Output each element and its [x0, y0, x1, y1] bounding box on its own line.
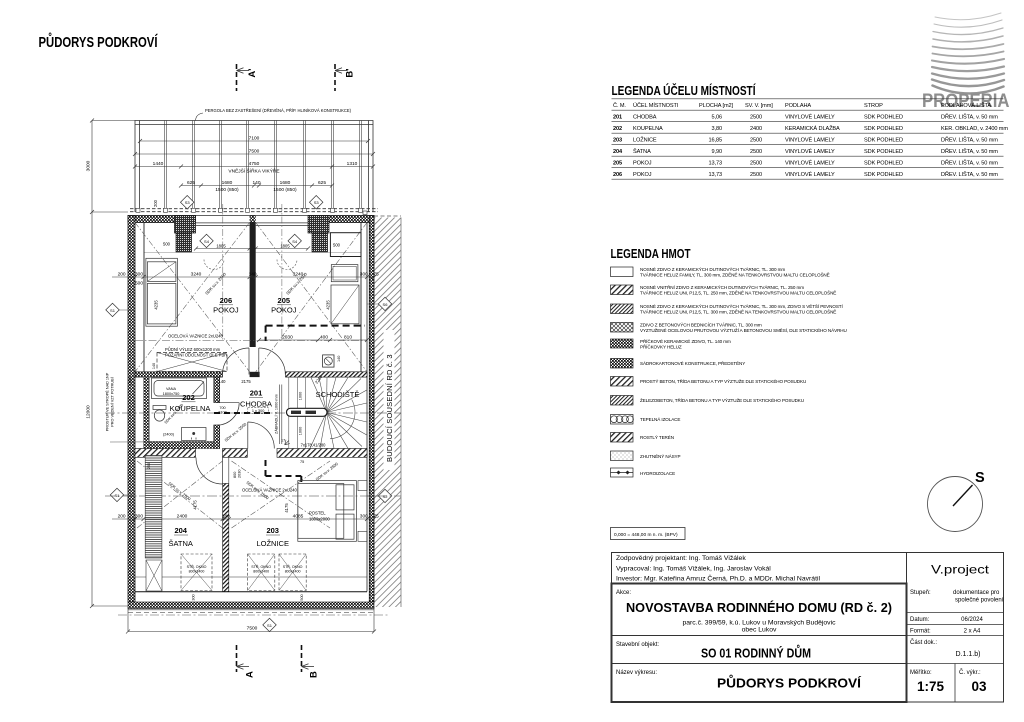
- svg-text:500: 500: [135, 281, 143, 287]
- svg-text:800x1400: 800x1400: [189, 570, 205, 574]
- svg-text:Stavební objekt:: Stavební objekt:: [616, 642, 659, 648]
- svg-text:9,90: 9,90: [712, 149, 723, 155]
- svg-text:(2400): (2400): [163, 433, 175, 437]
- svg-text:STŘ. OKNO: STŘ. OKNO: [283, 564, 303, 569]
- svg-text:206: 206: [613, 172, 622, 178]
- svg-text:4175: 4175: [284, 503, 289, 513]
- svg-text:2400: 2400: [750, 126, 762, 132]
- svg-text:300: 300: [135, 514, 143, 520]
- svg-text:TVÁRNICE HELUZ UNI, P12,5, TL.: TVÁRNICE HELUZ UNI, P12,5, TL. 300 mm, Z…: [640, 308, 836, 315]
- svg-text:2500: 2500: [750, 149, 762, 155]
- svg-text:SDK PODHLED: SDK PODHLED: [864, 172, 903, 178]
- svg-text:TVÁRNICE HELUZ FAMILY, TL. 300: TVÁRNICE HELUZ FAMILY, TL. 300 mm, ZDĚNÉ…: [640, 271, 830, 278]
- svg-text:Název výkresu:: Název výkresu:: [616, 670, 657, 676]
- svg-text:LOŽNICE: LOŽNICE: [256, 539, 289, 548]
- svg-text:KER. OBKLAD, v. 2400 mm: KER. OBKLAD, v. 2400 mm: [941, 126, 1008, 132]
- svg-text:S3: S3: [314, 200, 320, 205]
- svg-text:Formát:: Formát:: [910, 629, 931, 635]
- svg-text:204: 204: [613, 149, 623, 155]
- svg-text:2500: 2500: [750, 172, 762, 178]
- svg-text:S1: S1: [110, 308, 116, 313]
- svg-text:HYDROIZOLACE: HYDROIZOLACE: [640, 471, 675, 476]
- svg-text:300: 300: [360, 272, 368, 278]
- svg-text:VINYLOVÉ LAMELY: VINYLOVÉ LAMELY: [785, 114, 835, 121]
- svg-text:PLOCHA [m2]: PLOCHA [m2]: [699, 103, 734, 109]
- svg-text:17: 17: [281, 439, 285, 443]
- svg-text:PRO VEDENÍ VZT POTRUBÍ: PRO VEDENÍ VZT POTRUBÍ: [111, 376, 115, 426]
- svg-text:společné povolení: společné povolení: [955, 598, 1004, 604]
- svg-text:625: 625: [187, 180, 195, 186]
- svg-text:Č. výkr.:: Č. výkr.:: [959, 669, 981, 676]
- svg-text:SÁDROKARTONOVÉ KONSTRUKCE, PŘE: SÁDROKARTONOVÉ KONSTRUKCE, PŘEDSTĚNY: [640, 359, 745, 366]
- svg-text:S4: S4: [204, 239, 210, 244]
- svg-text:CHODBA: CHODBA: [633, 115, 657, 121]
- svg-text:PODLAHOVÁ LIŠTA: PODLAHOVÁ LIŠTA: [941, 102, 991, 109]
- svg-text:13,73: 13,73: [709, 161, 723, 167]
- svg-text:201: 201: [250, 389, 263, 398]
- svg-text:1680: 1680: [222, 180, 233, 186]
- svg-text:7500: 7500: [247, 626, 258, 632]
- svg-text:06/2024: 06/2024: [961, 617, 983, 623]
- svg-text:140: 140: [249, 272, 257, 278]
- svg-text:S3: S3: [185, 200, 191, 205]
- svg-text:7500: 7500: [249, 149, 260, 155]
- svg-text:Akce:: Akce:: [616, 590, 631, 596]
- svg-text:300: 300: [135, 272, 143, 278]
- svg-text:PŮDNÍ VÝLEZ 600x1200 mm: PŮDNÍ VÝLEZ 600x1200 mm: [165, 347, 221, 352]
- svg-text:800x1400: 800x1400: [285, 570, 301, 574]
- svg-text:OCELOVÁ VAZNICE 2xU240: OCELOVÁ VAZNICE 2xU240: [242, 488, 298, 493]
- svg-text:7x178,41/280: 7x178,41/280: [301, 442, 327, 447]
- svg-text:B': B': [345, 69, 356, 78]
- svg-text:202: 202: [613, 126, 622, 132]
- svg-text:2400: 2400: [177, 514, 188, 520]
- svg-text:75: 75: [373, 514, 379, 520]
- svg-text:Část dok.:: Část dok.:: [910, 639, 937, 646]
- svg-text:OCELOVÁ VAZNICE 2xU240: OCELOVÁ VAZNICE 2xU240: [168, 334, 224, 339]
- svg-text:140: 140: [222, 514, 230, 520]
- svg-text:PODLAHA: PODLAHA: [785, 103, 811, 109]
- svg-text:TEPELNÁ IZOLACE: TEPELNÁ IZOLACE: [640, 416, 680, 422]
- svg-text:PŮDORYS PODKROVÍ: PŮDORYS PODKROVÍ: [717, 675, 862, 691]
- svg-text:ŠATNA: ŠATNA: [168, 539, 192, 548]
- svg-text:3240: 3240: [191, 272, 202, 278]
- svg-text:140: 140: [219, 379, 227, 384]
- svg-text:500: 500: [300, 594, 304, 600]
- svg-text:Č. M.: Č. M.: [613, 102, 626, 109]
- svg-text:1680: 1680: [280, 180, 291, 186]
- svg-text:200: 200: [153, 199, 158, 207]
- svg-text:203: 203: [613, 138, 622, 144]
- svg-text:3240: 3240: [293, 272, 304, 278]
- svg-text:POKOJ: POKOJ: [213, 306, 239, 315]
- svg-text:1000: 1000: [299, 392, 303, 400]
- svg-text:7100: 7100: [249, 136, 260, 142]
- svg-text:S2: S2: [383, 494, 389, 499]
- svg-text:ROSTLÝ TERÉN: ROSTLÝ TERÉN: [640, 434, 674, 440]
- svg-text:PŘÍČKOVÉ KERAMICKÉ ZDIVO, TL.: PŘÍČKOVÉ KERAMICKÉ ZDIVO, TL. 140 mm: [640, 337, 731, 344]
- svg-text:PROSTUP VE STROPĚ NAD 1NP: PROSTUP VE STROPĚ NAD 1NP: [105, 372, 110, 431]
- svg-text:75: 75: [300, 460, 304, 464]
- svg-text:POŽÁRNÍ ODOLNOST DLE PBŘ: POŽÁRNÍ ODOLNOST DLE PBŘ: [165, 353, 227, 358]
- svg-text:TVÁRNICE HELUZ UNI, P12,5, TL.: TVÁRNICE HELUZ UNI, P12,5, TL. 250 mm, Z…: [640, 289, 836, 296]
- svg-text:1805: 1805: [216, 244, 226, 249]
- svg-text:3000: 3000: [86, 160, 92, 171]
- svg-text:BUDOUCÍ SOUSEDNÍ RD č. 3: BUDOUCÍ SOUSEDNÍ RD č. 3: [385, 354, 394, 462]
- svg-text:1000: 1000: [299, 427, 303, 435]
- svg-text:140: 140: [252, 180, 260, 186]
- svg-text:KOUPELNA: KOUPELNA: [633, 126, 663, 132]
- svg-text:DŘEV. LIŠTA, v. 50 mm: DŘEV. LIŠTA, v. 50 mm: [941, 170, 998, 178]
- svg-text:2 x A4: 2 x A4: [964, 629, 981, 635]
- svg-text:5,06: 5,06: [712, 115, 723, 121]
- svg-text:13,73: 13,73: [709, 172, 723, 178]
- svg-text:POKOJ: POKOJ: [271, 306, 297, 315]
- svg-text:ZÁBRADLÍ V. 1000 mm: ZÁBRADLÍ V. 1000 mm: [275, 394, 279, 434]
- svg-text:1:75: 1:75: [917, 679, 945, 694]
- svg-text:STŘ. OKNO: STŘ. OKNO: [251, 564, 271, 569]
- svg-text:KERAMICKÁ DLAŽBA: KERAMICKÁ DLAŽBA: [785, 124, 840, 132]
- svg-text:1310: 1310: [347, 161, 358, 167]
- svg-text:75: 75: [373, 272, 379, 278]
- svg-text:Stupeň:: Stupeň:: [910, 590, 931, 596]
- svg-text:200: 200: [118, 514, 126, 520]
- svg-text:VYZTUŽENÉ OCELOVOU PRUTOVOU VÝ: VYZTUŽENÉ OCELOVOU PRUTOVOU VÝZTUŽÍ A BE…: [640, 326, 847, 333]
- svg-text:140: 140: [152, 363, 156, 369]
- svg-text:B: B: [309, 671, 320, 678]
- svg-text:203: 203: [266, 526, 279, 535]
- svg-text:200: 200: [118, 272, 126, 278]
- svg-text:206: 206: [220, 296, 233, 305]
- svg-text:POKOJ: POKOJ: [633, 172, 652, 178]
- svg-text:800x1400: 800x1400: [253, 570, 269, 574]
- svg-text:ÚČEL MÍSTNOSTI: ÚČEL MÍSTNOSTI: [633, 102, 679, 109]
- svg-text:ŽELEZOBETON, TŘÍDA BETONU A TY: ŽELEZOBETON, TŘÍDA BETONU A TYP VÝZTUŽE …: [640, 396, 804, 403]
- svg-text:2030: 2030: [282, 335, 293, 341]
- svg-text:DŘEV. LIŠTA, v. 50 mm: DŘEV. LIŠTA, v. 50 mm: [941, 136, 998, 144]
- svg-text:S1: S1: [115, 493, 121, 498]
- svg-text:0,000 = 448,00 m n. m. (BPV): 0,000 = 448,00 m n. m. (BPV): [614, 532, 678, 538]
- svg-text:400: 400: [320, 335, 328, 341]
- svg-text:SDK PODHLED: SDK PODHLED: [864, 161, 903, 167]
- svg-text:obec Lukov: obec Lukov: [742, 627, 777, 634]
- svg-text:POSTEL: POSTEL: [309, 511, 326, 516]
- svg-text:NOSNÉ VNITŘNÍ ZDIVO Z KERAMICK: NOSNÉ VNITŘNÍ ZDIVO Z KERAMICKÝCH DUTINO…: [640, 283, 804, 290]
- svg-text:204: 204: [174, 526, 187, 535]
- svg-text:500: 500: [163, 242, 171, 247]
- svg-text:VANA: VANA: [166, 387, 177, 391]
- svg-text:300: 300: [360, 514, 368, 520]
- svg-text:250: 250: [147, 463, 151, 469]
- svg-text:STŘ. OKNO: STŘ. OKNO: [187, 564, 207, 569]
- svg-text:A': A': [247, 69, 258, 78]
- svg-text:CHODBA: CHODBA: [240, 400, 272, 409]
- svg-text:800: 800: [233, 472, 237, 478]
- svg-text:SO 01 RODINNÝ DŮM: SO 01 RODINNÝ DŮM: [701, 645, 811, 661]
- svg-text:SDK PODHLED: SDK PODHLED: [864, 126, 903, 132]
- svg-text:SV. V. [mm]: SV. V. [mm]: [745, 103, 773, 109]
- svg-text:2500: 2500: [750, 161, 762, 167]
- svg-text:12000: 12000: [86, 405, 92, 419]
- svg-text:3,80: 3,80: [712, 126, 723, 132]
- svg-text:03: 03: [971, 679, 987, 694]
- svg-text:1500 (850): 1500 (850): [215, 187, 239, 193]
- svg-text:4235: 4235: [154, 300, 159, 310]
- svg-text:ZDIVO Z BETONOVÝCH BEDNICÍCH T: ZDIVO Z BETONOVÝCH BEDNICÍCH TVÁRNIC, TL…: [640, 322, 762, 328]
- svg-text:1800x750: 1800x750: [163, 392, 180, 396]
- svg-text:NOSNÉ ZDIVO Z KERAMICKÝCH DUTI: NOSNÉ ZDIVO Z KERAMICKÝCH DUTINOVÝCH TVÁ…: [640, 266, 785, 272]
- svg-text:4750: 4750: [249, 161, 260, 167]
- svg-text:D.1.1.b): D.1.1.b): [956, 651, 981, 658]
- svg-text:SDK PODHLED: SDK PODHLED: [864, 149, 903, 155]
- svg-text:NOSNÉ ZDIVO Z KERAMICKÝCH DUTI: NOSNÉ ZDIVO Z KERAMICKÝCH DUTINOVÝCH TVÁ…: [640, 302, 843, 309]
- svg-text:625: 625: [318, 180, 326, 186]
- svg-text:202: 202: [182, 393, 195, 402]
- svg-text:2500: 2500: [750, 115, 762, 121]
- svg-text:DŘEV. LIŠTA, v. 50 mm: DŘEV. LIŠTA, v. 50 mm: [941, 147, 998, 155]
- svg-text:VINYLOVÉ LAMELY: VINYLOVÉ LAMELY: [785, 137, 835, 144]
- svg-text:Datum:: Datum:: [910, 617, 930, 623]
- svg-text:1805: 1805: [280, 244, 290, 249]
- svg-text:LOŽNICE: LOŽNICE: [633, 136, 657, 144]
- svg-text:205: 205: [613, 161, 622, 167]
- svg-text:Zodpovědný projektant: Ing. To: Zodpovědný projektant: Ing. Tomáš Vižále…: [616, 555, 746, 562]
- svg-text:1500: 1500: [129, 377, 133, 385]
- svg-text:dokumentace pro: dokumentace pro: [953, 590, 1000, 596]
- svg-text:16,85: 16,85: [709, 138, 723, 144]
- svg-text:PŘÍČKOVKY HELUZ: PŘÍČKOVKY HELUZ: [640, 343, 682, 350]
- svg-text:DŘEV. LIŠTA, v. 50 mm: DŘEV. LIŠTA, v. 50 mm: [941, 113, 998, 121]
- svg-text:DŘEV. LIŠTA, v. 50 mm: DŘEV. LIŠTA, v. 50 mm: [941, 159, 998, 167]
- svg-text:700: 700: [219, 406, 225, 410]
- svg-text:Investor: Mgr. Kateřina Amruz: Investor: Mgr. Kateřina Amruz Černá, Ph.…: [616, 574, 820, 583]
- svg-text:VINYLOVÉ LAMELY: VINYLOVÉ LAMELY: [785, 171, 835, 178]
- svg-text:parc.č. 399/59, k.ú. Lukov u M: parc.č. 399/59, k.ú. Lukov u Moravských …: [682, 620, 836, 627]
- svg-text:POKOJ: POKOJ: [633, 161, 652, 167]
- svg-text:S: S: [975, 470, 985, 486]
- svg-text:Vypracoval: Ing. Tomáš Vižálek: Vypracoval: Ing. Tomáš Vižálek, Ing. Jar…: [616, 566, 771, 573]
- svg-text:2100: 2100: [218, 411, 226, 415]
- svg-text:500: 500: [333, 243, 341, 248]
- svg-text:V.project: V.project: [931, 563, 990, 577]
- svg-text:4175: 4175: [193, 500, 198, 510]
- svg-text:LEGENDA HMOT: LEGENDA HMOT: [611, 246, 691, 261]
- svg-text:SDK PODHLED: SDK PODHLED: [864, 138, 903, 144]
- svg-text:4235: 4235: [326, 300, 331, 310]
- svg-text:201: 201: [613, 115, 622, 121]
- svg-text:ZHUTNĚNÝ NÁSYP: ZHUTNĚNÝ NÁSYP: [640, 452, 680, 459]
- svg-text:205: 205: [278, 296, 291, 305]
- svg-text:S1: S1: [267, 623, 273, 628]
- svg-text:PROSTÝ BETON, TŘÍDA BETONU A T: PROSTÝ BETON, TŘÍDA BETONU A TYP VÝZTUŽE…: [640, 377, 806, 384]
- svg-text:VINYLOVÉ LAMELY: VINYLOVÉ LAMELY: [785, 148, 835, 155]
- svg-text:PŮDORYS PODKROVÍ: PŮDORYS PODKROVÍ: [39, 32, 159, 51]
- svg-text:2175: 2175: [241, 379, 251, 384]
- svg-text:SDK PODHLED: SDK PODHLED: [864, 115, 903, 121]
- svg-text:1440: 1440: [153, 161, 164, 167]
- svg-text:Měřítko:: Měřítko:: [910, 670, 932, 676]
- svg-text:STROP: STROP: [864, 103, 883, 109]
- svg-text:A: A: [245, 671, 256, 678]
- svg-text:VINYLOVÉ LAMELY: VINYLOVÉ LAMELY: [785, 160, 835, 167]
- svg-text:810: 810: [344, 335, 352, 341]
- svg-text:300: 300: [192, 594, 196, 600]
- svg-text:1500 (850): 1500 (850): [273, 187, 297, 193]
- svg-text:2030: 2030: [238, 470, 242, 478]
- svg-text:ŠATNA: ŠATNA: [633, 148, 651, 155]
- svg-text:S6: S6: [383, 302, 389, 307]
- svg-text:1 x 300: 1 x 300: [252, 409, 264, 413]
- svg-text:NOVOSTAVBA RODINNÉHO DOMU (RD: NOVOSTAVBA RODINNÉHO DOMU (RD č. 2): [626, 600, 892, 615]
- svg-text:S4: S4: [292, 239, 298, 244]
- svg-text:LEGENDA ÚČELU MÍSTNOSTÍ: LEGENDA ÚČELU MÍSTNOSTÍ: [612, 83, 756, 98]
- svg-text:2500: 2500: [750, 138, 762, 144]
- svg-text:4085: 4085: [293, 514, 304, 520]
- svg-text:140: 140: [337, 356, 341, 362]
